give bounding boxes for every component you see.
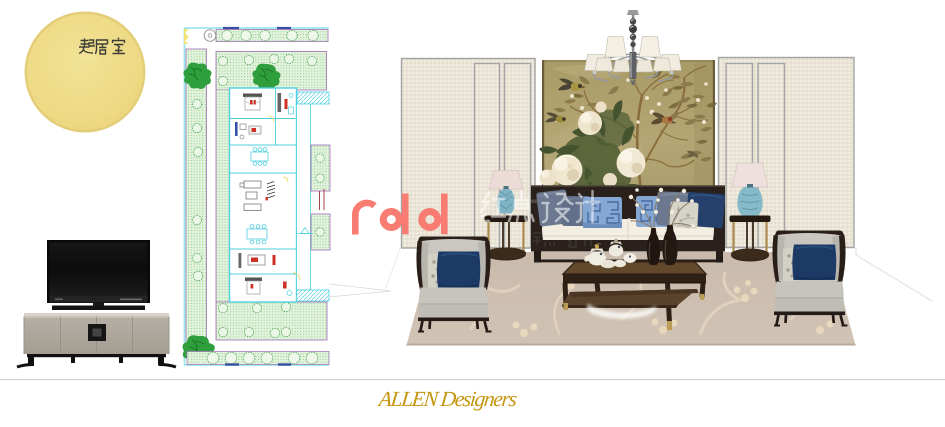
svg-text:ALLEN Designers: ALLEN Designers xyxy=(376,387,519,411)
